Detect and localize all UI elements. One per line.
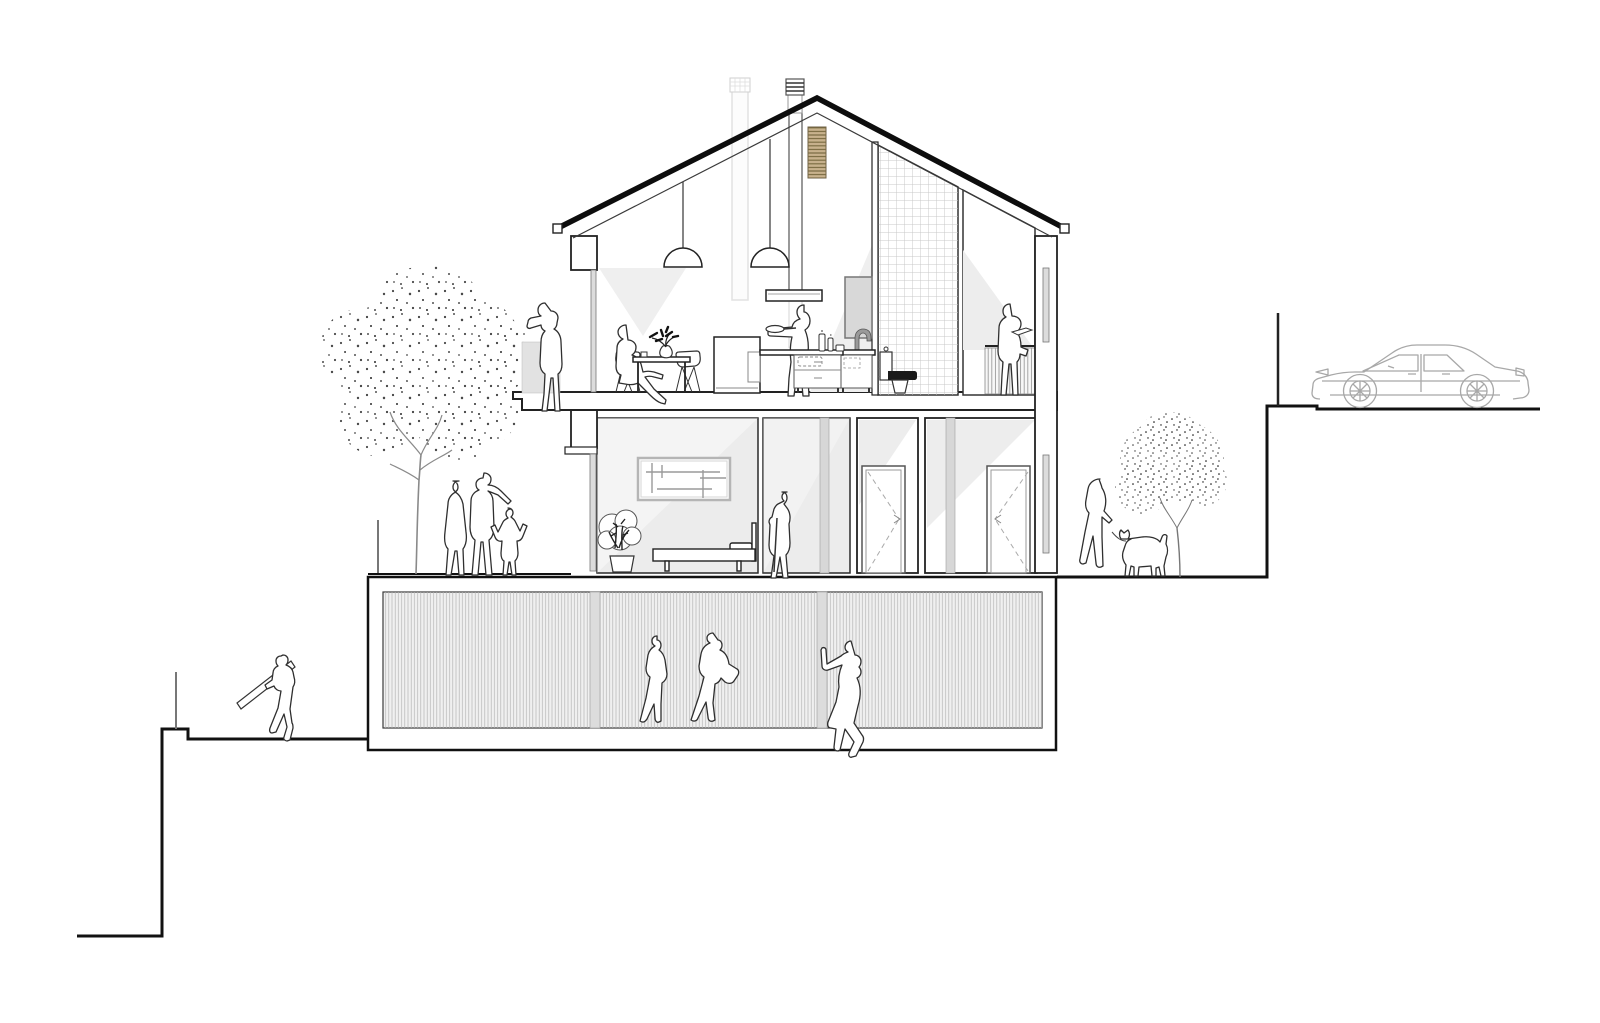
balcony-room [963, 190, 1035, 395]
middle-window-sill [565, 447, 597, 454]
picture-frame [638, 458, 730, 500]
top-floor [522, 78, 1035, 404]
family-adult-1 [445, 481, 467, 575]
small-tree-canopy [1115, 412, 1227, 514]
pendant-lamp-right [751, 139, 789, 267]
extractor-duct [789, 108, 802, 290]
ghost-chimney-flue [730, 78, 750, 300]
section-drawing: Residential building cross-section drawi… [0, 0, 1600, 1023]
middle-left-window-glazing [590, 454, 596, 571]
family-child [491, 508, 527, 575]
middle-left-wall [571, 410, 597, 448]
wood-slat-vent [808, 127, 826, 178]
gutter-right [1060, 224, 1069, 233]
terrain-left-profile [77, 729, 368, 936]
dog-figure [1120, 530, 1168, 576]
plank-carrier [237, 655, 295, 741]
hallway-doorway-strip [820, 418, 829, 573]
toilet-seat [888, 371, 917, 380]
wall-mirror [845, 277, 872, 338]
pendant-lamp-left [664, 182, 702, 267]
interior-door-right [987, 466, 1030, 573]
car-rear-wheel [1461, 375, 1494, 408]
interior-door-left [862, 466, 905, 573]
right-upper-window-glazing [1043, 268, 1049, 342]
table-vase-flowers [650, 327, 678, 358]
doorway-strip-right [946, 418, 955, 573]
walking-family [445, 473, 527, 575]
bathroom-partition-wall [872, 142, 878, 395]
top-left-wall [571, 236, 597, 270]
top-left-window-glazing [591, 270, 596, 392]
middle-floor [565, 410, 1037, 573]
plank-carrier-figure [265, 655, 295, 741]
extractor-hood [766, 290, 822, 301]
dog-walker-figure [1080, 479, 1112, 567]
living-room-wedge [599, 268, 686, 336]
cup [641, 352, 647, 357]
parked-car [1312, 345, 1529, 408]
car-front-wheel [1344, 375, 1377, 408]
gutter-left [553, 224, 562, 233]
facade-seam-left [590, 592, 600, 728]
right-middle-window-glazing [1043, 455, 1049, 553]
large-tree-canopy [320, 266, 533, 463]
vanity-cabinet [838, 350, 875, 393]
